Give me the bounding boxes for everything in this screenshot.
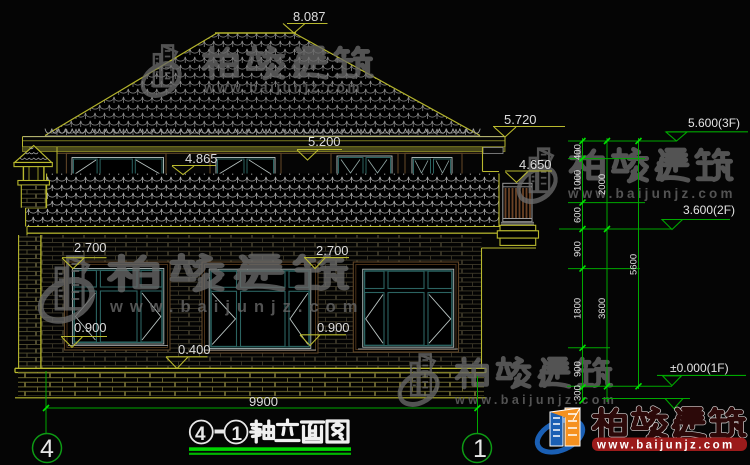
svg-text:3.600(2F): 3.600(2F) bbox=[683, 203, 735, 217]
svg-text:5.720: 5.720 bbox=[504, 112, 537, 127]
svg-text:1000: 1000 bbox=[573, 170, 584, 191]
svg-text:www.baijunjz.com: www.baijunjz.com bbox=[454, 393, 617, 407]
svg-text:4: 4 bbox=[195, 424, 206, 445]
svg-text:9900: 9900 bbox=[249, 394, 278, 409]
svg-text:www.baijunjz.com: www.baijunjz.com bbox=[109, 298, 364, 316]
svg-text:1: 1 bbox=[232, 424, 243, 445]
svg-text:0.900: 0.900 bbox=[317, 320, 350, 335]
svg-text:www.baijunjz.com: www.baijunjz.com bbox=[567, 186, 736, 201]
svg-text:900: 900 bbox=[573, 361, 584, 377]
svg-text:4.865: 4.865 bbox=[185, 151, 218, 166]
svg-text:www.baijunjz.com: www.baijunjz.com bbox=[203, 80, 362, 95]
svg-text:www.baijunjz.com: www.baijunjz.com bbox=[596, 440, 735, 452]
svg-text:1: 1 bbox=[473, 435, 487, 463]
svg-text:8.087: 8.087 bbox=[293, 9, 326, 24]
svg-text:2.700: 2.700 bbox=[74, 240, 107, 255]
svg-text:1800: 1800 bbox=[573, 298, 584, 319]
svg-text:5.200: 5.200 bbox=[308, 134, 341, 149]
svg-text:4.650: 4.650 bbox=[519, 157, 552, 172]
svg-text:400: 400 bbox=[573, 144, 584, 160]
svg-text:±0.000(1F): ±0.000(1F) bbox=[670, 361, 729, 375]
svg-text:4: 4 bbox=[40, 435, 54, 463]
svg-text:2000: 2000 bbox=[597, 174, 608, 195]
svg-text:5.600(3F): 5.600(3F) bbox=[688, 116, 740, 130]
svg-text:5600: 5600 bbox=[629, 254, 640, 275]
svg-text:2.700: 2.700 bbox=[316, 243, 349, 258]
svg-text:300: 300 bbox=[573, 385, 584, 401]
svg-text:3600: 3600 bbox=[597, 298, 608, 319]
svg-text:0.900: 0.900 bbox=[74, 320, 107, 335]
svg-text:600: 600 bbox=[573, 207, 584, 223]
svg-text:900: 900 bbox=[573, 241, 584, 257]
svg-text:0.400: 0.400 bbox=[178, 342, 211, 357]
